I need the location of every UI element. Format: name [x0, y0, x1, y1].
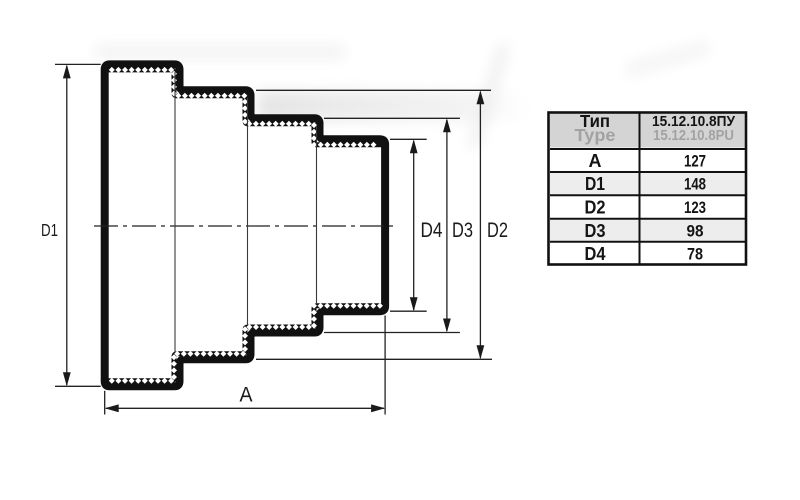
svg-text:78: 78 [687, 245, 703, 263]
svg-text:A: A [240, 384, 253, 407]
svg-text:D2: D2 [487, 219, 508, 242]
svg-text:D4: D4 [421, 219, 443, 242]
svg-text:123: 123 [684, 199, 706, 217]
svg-text:D4: D4 [585, 244, 606, 264]
svg-text:D1: D1 [41, 220, 58, 240]
svg-text:D1: D1 [585, 174, 605, 194]
svg-text:98: 98 [687, 222, 704, 240]
svg-text:Type: Type [575, 125, 616, 145]
svg-text:127: 127 [684, 152, 706, 170]
svg-text:D3: D3 [585, 221, 606, 241]
svg-text:A: A [589, 151, 602, 171]
svg-text:D2: D2 [585, 198, 606, 218]
svg-text:D3: D3 [452, 219, 473, 242]
svg-text:15.12.10.8PU: 15.12.10.8PU [653, 128, 734, 144]
svg-text:148: 148 [684, 176, 706, 194]
